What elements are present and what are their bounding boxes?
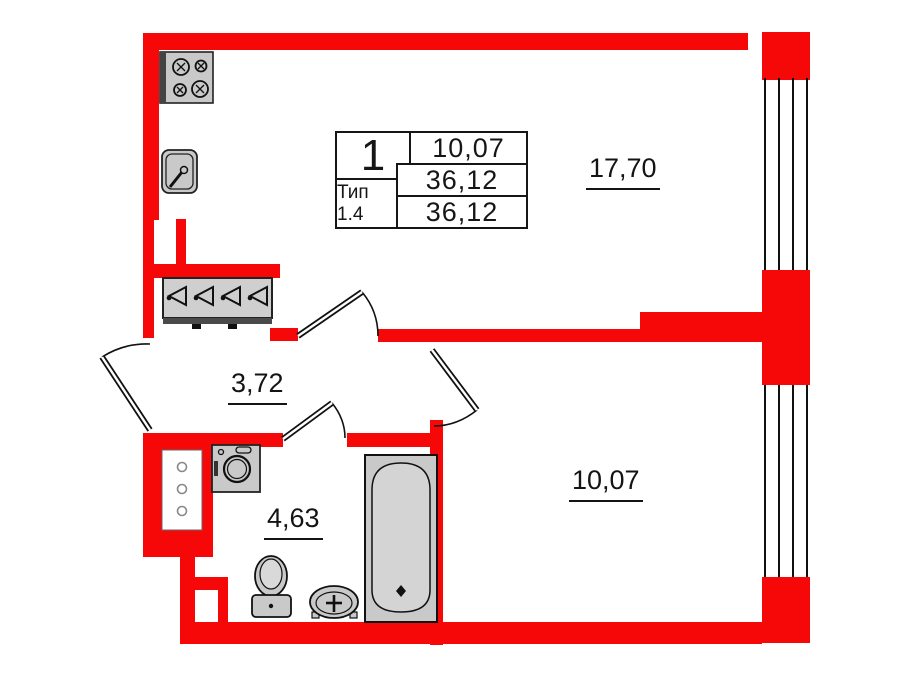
wall-segment	[143, 220, 154, 338]
wall-segment	[193, 577, 228, 590]
table-type-label: Тип 1.4	[335, 178, 398, 229]
bathtub-icon	[365, 455, 437, 622]
wall-segment	[143, 33, 159, 220]
bedroom-door	[432, 350, 477, 426]
wall-segment	[762, 270, 810, 385]
room-label-bedroom: 10,07	[569, 465, 643, 502]
wall-segment	[218, 590, 228, 624]
entry-door	[102, 344, 150, 430]
room-area-value: 3,72	[228, 368, 287, 405]
window-bedroom-icon	[765, 385, 807, 577]
wall-segment	[143, 33, 748, 50]
wall-segment	[640, 312, 762, 342]
vent-shaft-icon	[163, 278, 272, 329]
wall-segment	[270, 328, 298, 341]
kitchen-door	[298, 292, 378, 336]
room-area-value: 10,07	[569, 465, 643, 502]
room-area-value: 4,63	[264, 503, 323, 540]
room-label-bathroom: 4,63	[264, 503, 323, 540]
bathroom-door	[283, 403, 345, 439]
washing-machine-icon	[212, 445, 260, 492]
walls	[143, 32, 810, 645]
floor-plan: 17,70 10,07 3,72 4,63 1 Тип 1.4 10,07 36…	[0, 0, 900, 675]
washbasin-icon	[310, 586, 358, 618]
stove-icon	[160, 52, 213, 103]
wall-segment	[762, 32, 810, 80]
room-label-kitchen-living: 17,70	[586, 153, 660, 190]
wall-segment	[347, 433, 443, 447]
room-area-value: 17,70	[586, 153, 660, 190]
wall-segment	[762, 577, 810, 643]
utility-shaft-icon	[162, 450, 202, 530]
kitchen-sink-icon	[162, 150, 197, 193]
toilet-icon	[252, 556, 291, 617]
wall-segment	[152, 264, 280, 278]
window-kitchen-icon	[765, 78, 807, 270]
table-area-total: 36,12	[396, 163, 528, 197]
wall-segment	[176, 219, 186, 264]
wall-segment	[180, 622, 762, 644]
room-label-hallway: 3,72	[228, 368, 287, 405]
floor-plan-drawing	[0, 0, 900, 675]
table-area-living: 10,07	[409, 131, 528, 165]
wall-segment	[378, 329, 640, 342]
table-area-total-reduced: 36,12	[396, 195, 528, 229]
